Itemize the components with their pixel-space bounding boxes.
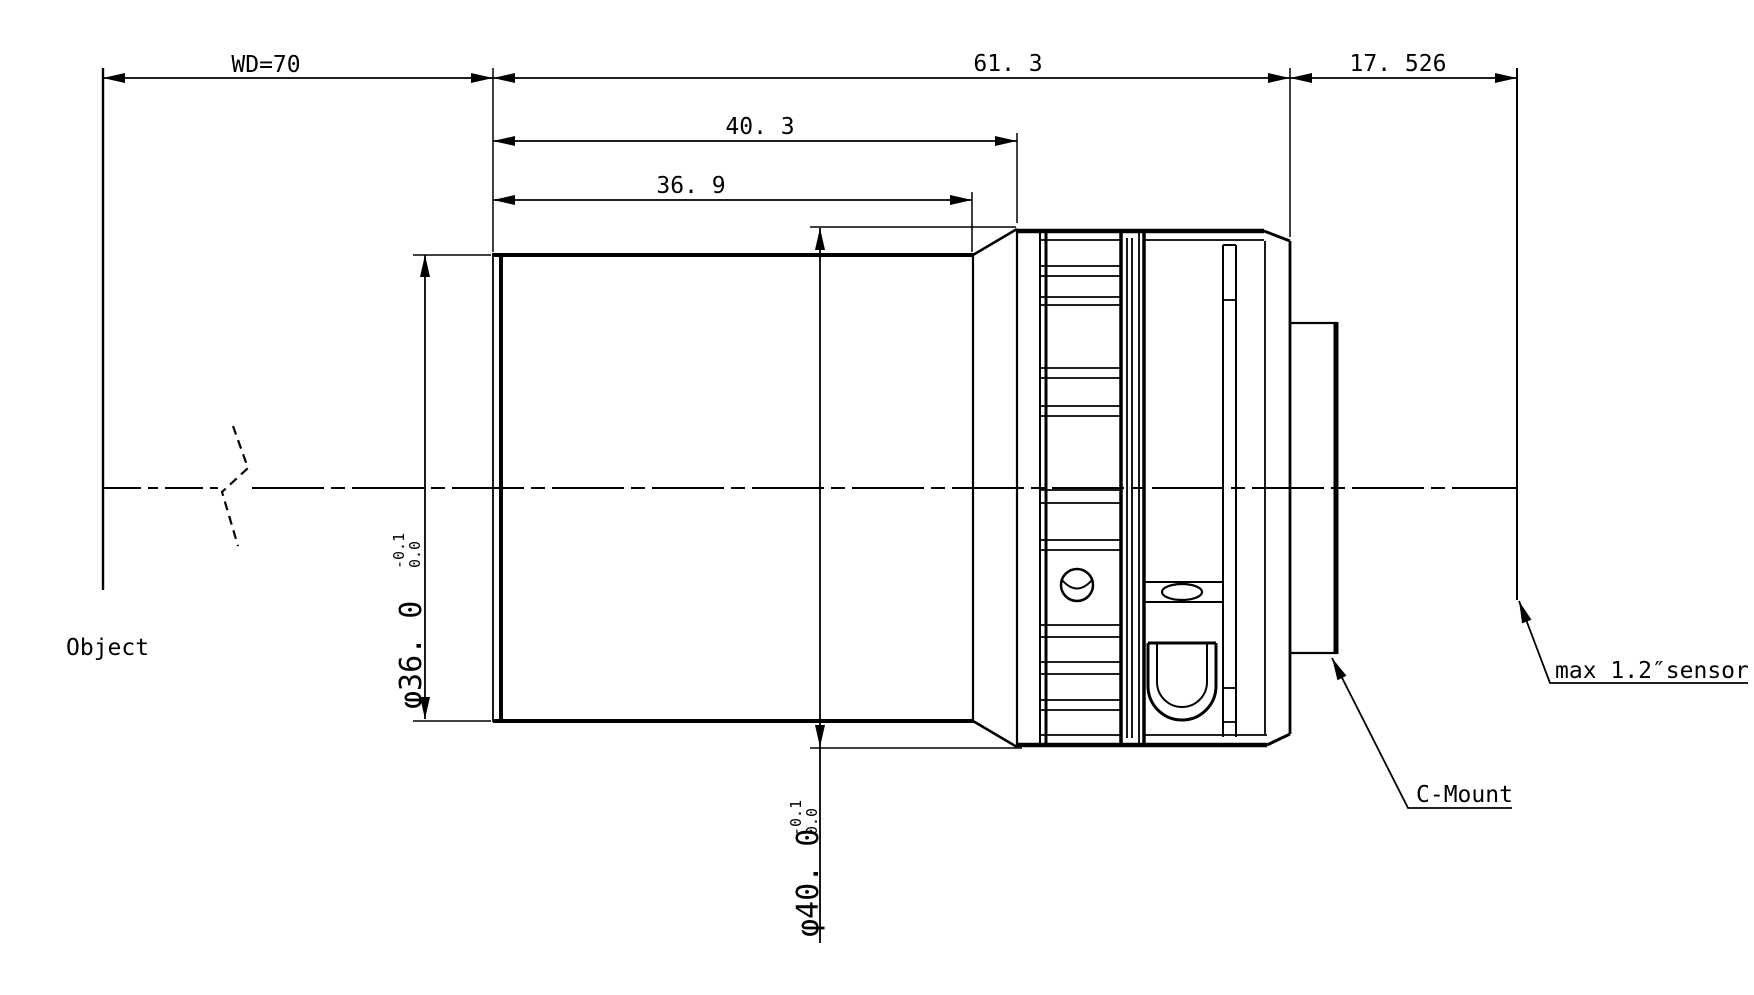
dim-ring-diameter: φ40. 0 0.0 -0.1	[787, 800, 826, 937]
dim-front-barrel-length: 36. 9	[656, 173, 725, 199]
u-slot	[1148, 643, 1216, 720]
dim-flange-focal-distance: 17. 526	[1350, 51, 1447, 77]
dim-working-distance: WD=70	[231, 52, 300, 78]
screw-hole	[1162, 584, 1202, 600]
drawing-svg: WD=70 61. 3 17. 526 40. 3 36. 9 φ36. 0 0…	[0, 0, 1754, 995]
phi36-tol-upper: 0.0	[406, 541, 424, 568]
dim-front-to-ring: 40. 3	[725, 114, 794, 140]
sensor-label: max 1.2″sensor	[1555, 658, 1749, 684]
phi36-value: φ36. 0	[394, 601, 429, 709]
ring-groove	[1127, 238, 1132, 738]
phi36-tol-lower: -0.1	[390, 533, 408, 569]
set-screw-slot	[1062, 580, 1092, 589]
phi40-tol-upper: 0.0	[803, 808, 821, 835]
phi40-tol-lower: -0.1	[787, 800, 805, 836]
dimension-lines-horizontal	[103, 78, 1517, 200]
lens-technical-drawing: WD=70 61. 3 17. 526 40. 3 36. 9 φ36. 0 0…	[0, 0, 1754, 995]
c-mount-label: C-Mount	[1416, 782, 1513, 808]
extension-lines	[413, 68, 1290, 748]
break-symbol	[222, 426, 248, 546]
phi40-value: φ40. 0	[791, 829, 826, 937]
dimension-arrowheads	[103, 73, 1517, 747]
object-label: Object	[66, 635, 149, 661]
dim-front-barrel-diameter: φ36. 0 0.0 -0.1	[390, 533, 429, 709]
dim-overall-length: 61. 3	[973, 51, 1042, 77]
dimension-lines-vertical	[425, 228, 820, 943]
